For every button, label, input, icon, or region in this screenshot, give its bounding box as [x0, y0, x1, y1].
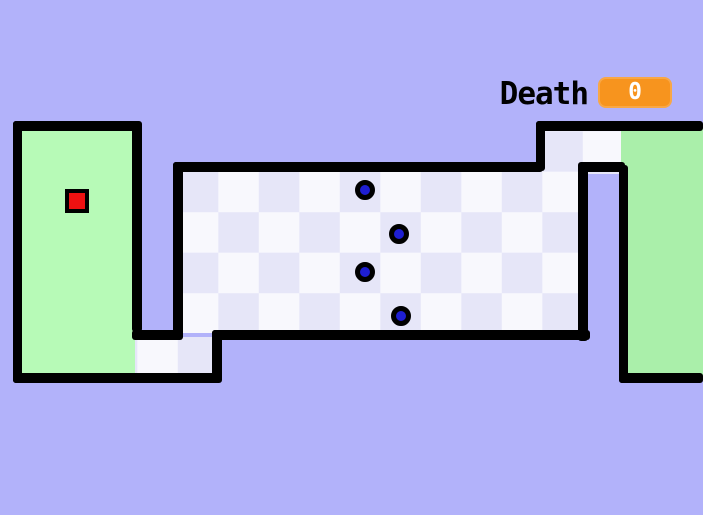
wall-end-bottom — [619, 373, 703, 383]
wall-passage-right — [212, 330, 222, 383]
player-square[interactable] — [65, 189, 89, 213]
bottom-left-passage — [135, 337, 215, 376]
enemy-ball-4 — [391, 306, 411, 326]
enemy-ball-2 — [389, 224, 409, 244]
death-counter: Death 0 — [430, 77, 703, 117]
wall-start-left — [13, 121, 22, 383]
death-count-badge: 0 — [598, 77, 672, 108]
start-zone — [21, 128, 135, 376]
wall-main-top — [173, 162, 543, 172]
wall-start-top — [13, 121, 141, 131]
wall-start-bottom — [13, 373, 219, 383]
enemy-ball-1 — [355, 180, 375, 200]
wall-main-bottom — [212, 330, 590, 340]
game-stage: Death 0 — [0, 0, 703, 515]
wall-exit-top — [536, 121, 703, 131]
enemy-ball-3 — [355, 262, 375, 282]
wall-start-right — [132, 121, 142, 332]
wall-end-left — [619, 165, 628, 383]
end-zone — [621, 128, 703, 376]
wall-main-right — [578, 165, 588, 341]
death-count-value: 0 — [628, 81, 642, 104]
main-checker-area — [181, 169, 581, 333]
wall-main-left — [173, 162, 183, 337]
wall-exit-bottom — [578, 162, 625, 172]
death-label: Death — [500, 79, 588, 110]
